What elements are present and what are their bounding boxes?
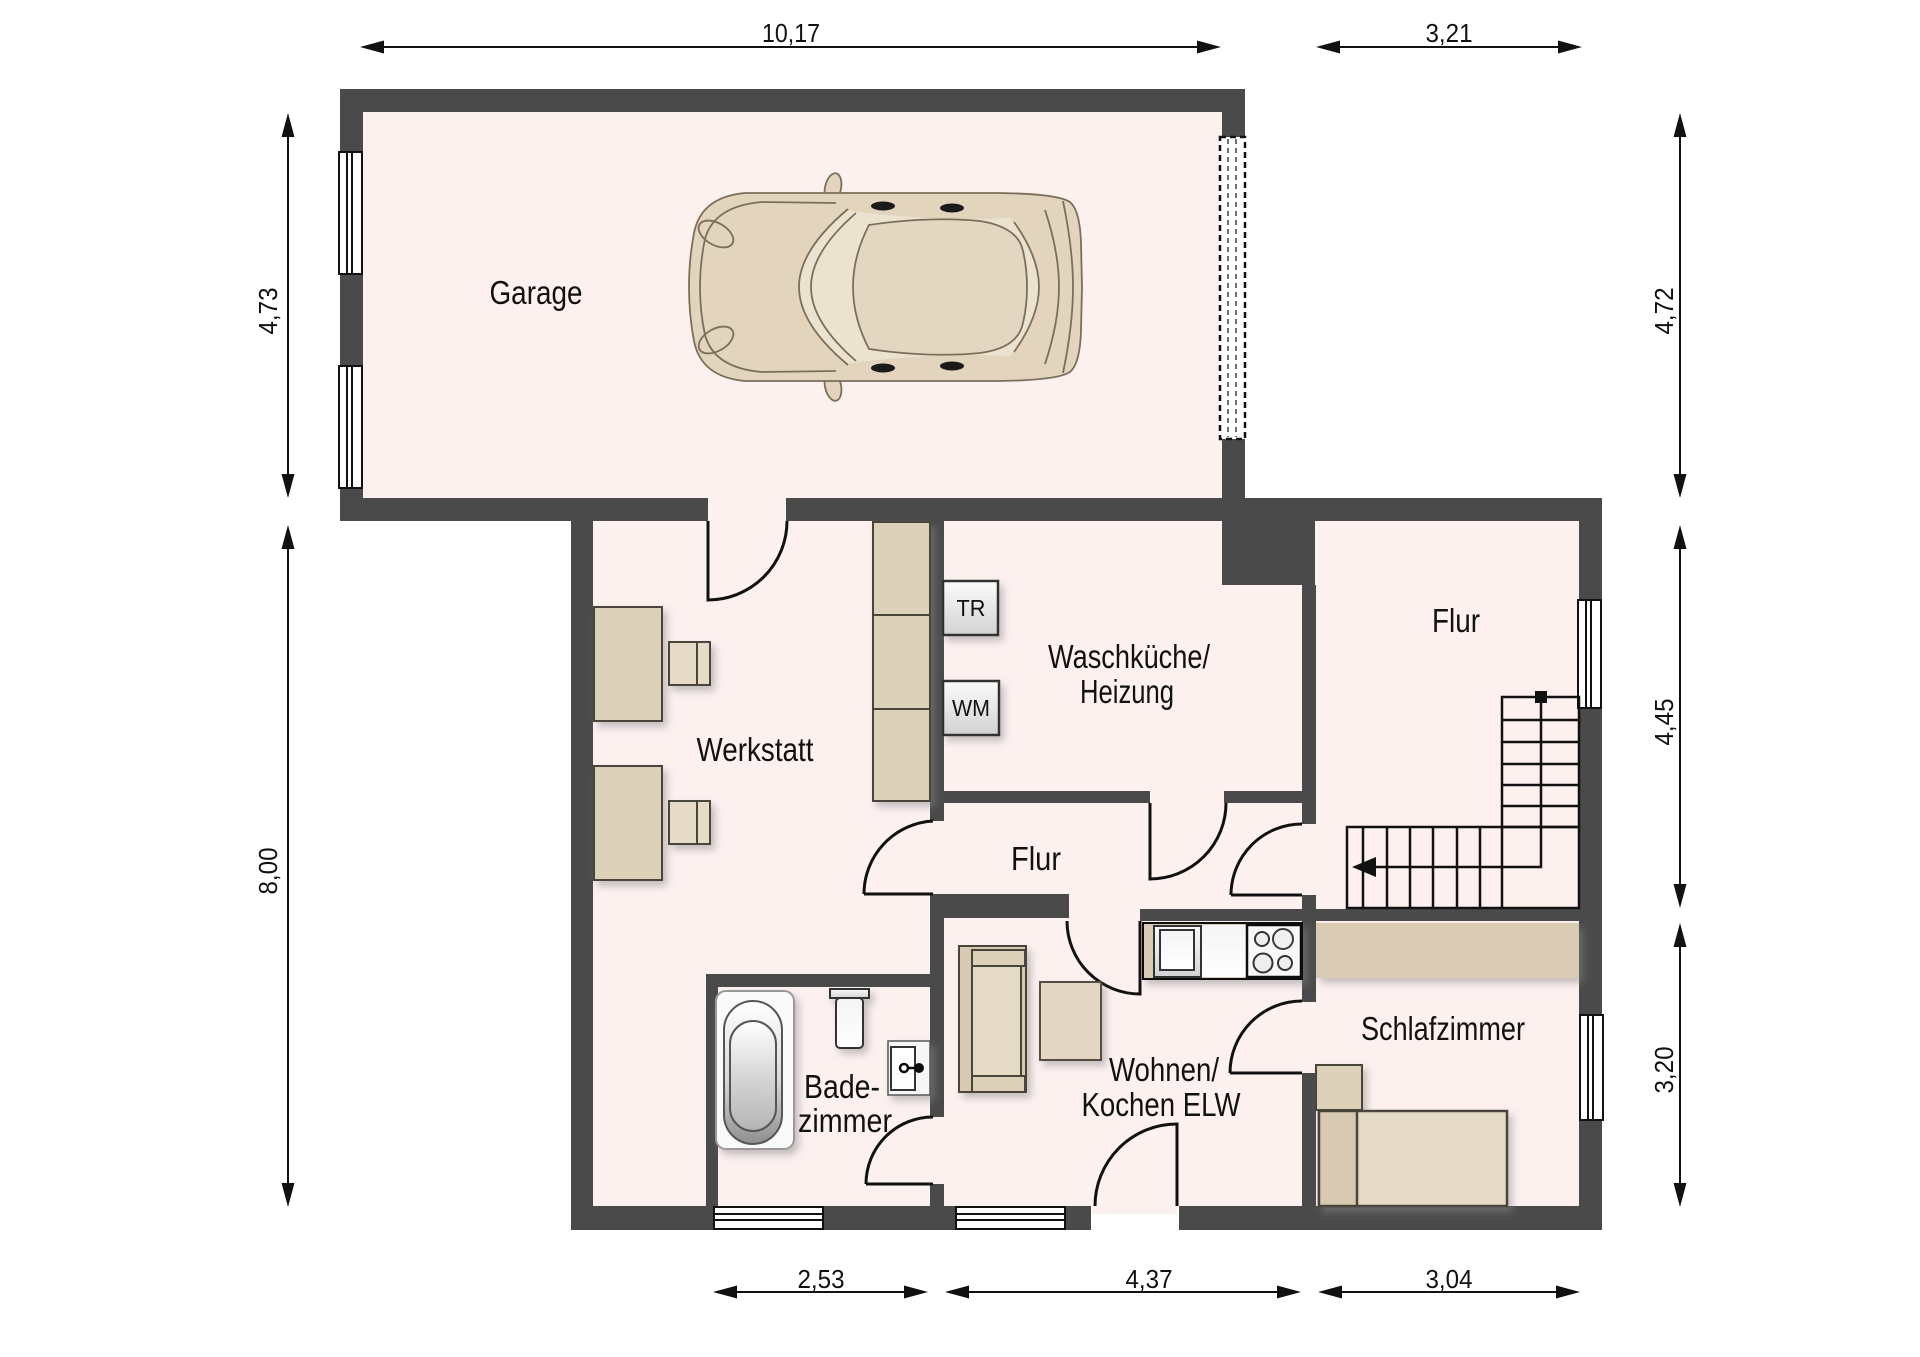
svg-text:4,72: 4,72 [1649, 288, 1679, 335]
svg-text:8,00: 8,00 [253, 848, 283, 895]
svg-text:3,20: 3,20 [1649, 1047, 1679, 1094]
svg-text:zimmer: zimmer [798, 1102, 892, 1139]
svg-text:2,53: 2,53 [798, 1264, 845, 1294]
svg-text:TR: TR [957, 595, 986, 621]
svg-text:3,04: 3,04 [1426, 1264, 1473, 1294]
svg-text:Flur: Flur [1011, 840, 1061, 877]
svg-text:3,21: 3,21 [1426, 18, 1473, 48]
svg-text:Schlafzimmer: Schlafzimmer [1361, 1010, 1525, 1047]
svg-text:Werkstatt: Werkstatt [697, 731, 814, 768]
svg-text:4,37: 4,37 [1126, 1264, 1173, 1294]
svg-text:Heizung: Heizung [1080, 673, 1174, 710]
svg-text:4,45: 4,45 [1649, 699, 1679, 746]
svg-text:Garage: Garage [490, 274, 583, 311]
svg-text:Flur: Flur [1432, 602, 1480, 639]
svg-text:10,17: 10,17 [762, 18, 820, 48]
svg-text:4,73: 4,73 [253, 288, 283, 335]
svg-text:Waschküche/: Waschküche/ [1048, 638, 1211, 675]
svg-text:Bade-: Bade- [804, 1068, 880, 1105]
svg-text:Kochen ELW: Kochen ELW [1082, 1086, 1242, 1123]
svg-text:Wohnen/: Wohnen/ [1109, 1051, 1220, 1088]
svg-text:WM: WM [952, 695, 990, 721]
